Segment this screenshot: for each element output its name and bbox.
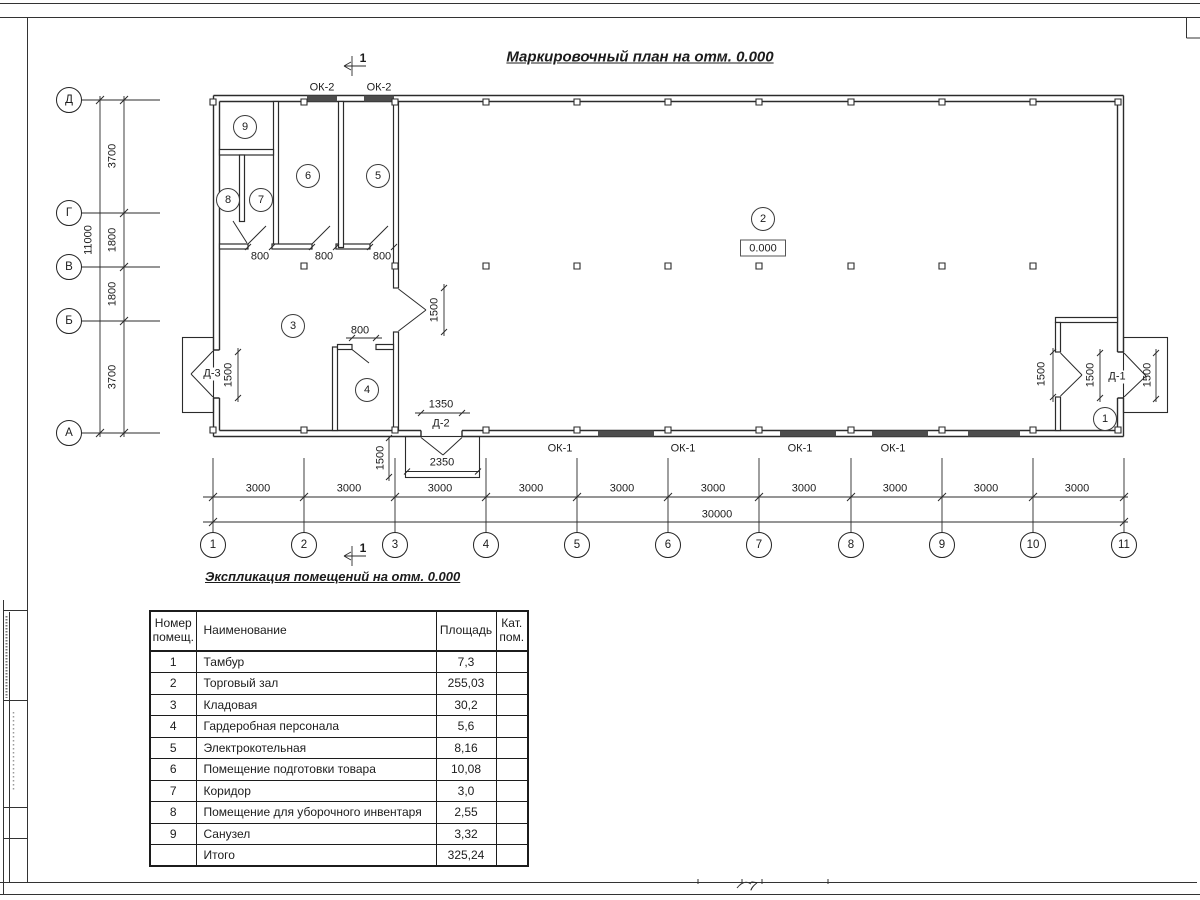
schedule-row: 3Кладовая30,2	[150, 694, 528, 716]
dim-800-room4: 800	[351, 326, 369, 337]
dim-1500-porch: 1500	[376, 446, 387, 470]
dim-v-3700-top: 3700	[108, 144, 119, 168]
dim-h-3000-2: 3000	[337, 484, 361, 495]
drawing-sheet: { "sheet": { "handwritten_mark": "7" }, …	[0, 0, 1200, 900]
axis-bubble-3: 3	[382, 532, 408, 558]
window-label-ok2-2: ОК-2	[367, 83, 392, 94]
axis-bubble-1: 1	[200, 532, 226, 558]
schedule-row-total: Итого325,24	[150, 845, 528, 867]
door-label-d2: Д-2	[432, 419, 449, 430]
dim-1350: 1350	[429, 400, 453, 411]
window-label-ok2-1: ОК-2	[310, 83, 335, 94]
columns	[210, 99, 1121, 433]
dim-800-door6: 800	[315, 252, 333, 263]
axis-bubble-4: 4	[473, 532, 499, 558]
dim-1500-d1: 1500	[1086, 363, 1097, 387]
dim-v-1800-1: 1800	[108, 228, 119, 252]
axis-bubble-6: 6	[655, 532, 681, 558]
window-label-ok1-3: ОК-1	[788, 444, 813, 455]
dim-h-3000-10: 3000	[1065, 484, 1089, 495]
plan-title: Маркировочный план на отм. 0.000	[506, 49, 773, 66]
dim-1500-tambour-door: 1500	[1037, 362, 1048, 386]
dim-2350: 2350	[430, 458, 454, 469]
room-number-3: 3	[281, 314, 305, 338]
axis-bubble-10: 10	[1020, 532, 1046, 558]
schedule-header-num: Номер помещ.	[150, 611, 196, 651]
schedule-row: 8Помещение для уборочного инвентаря2,55	[150, 802, 528, 824]
dim-h-3000-8: 3000	[883, 484, 907, 495]
room-number-8: 8	[216, 188, 240, 212]
window-bands	[307, 96, 1020, 437]
dim-v-total-11000: 11000	[84, 225, 95, 255]
porches	[183, 338, 1168, 478]
room-number-9: 9	[233, 115, 257, 139]
axis-bubble-8: 8	[838, 532, 864, 558]
dim-h-total-30000: 30000	[702, 510, 733, 521]
dim-800-door7: 800	[251, 252, 269, 263]
dim-h-3000-1: 3000	[246, 484, 270, 495]
axis-bubble-d: Д	[56, 87, 82, 113]
dim-h-3000-7: 3000	[792, 484, 816, 495]
axis-bubble-a: А	[56, 420, 82, 446]
schedule-row: 9Санузел3,32	[150, 823, 528, 845]
schedule-title: Экспликация помещений на отм. 0.000	[205, 569, 460, 584]
axis-bubble-11: 11	[1111, 532, 1137, 558]
axis-bubble-g: Г	[56, 200, 82, 226]
section-mark-bottom: 1	[360, 541, 367, 555]
window-label-ok1-1: ОК-1	[548, 444, 573, 455]
schedule-row: 4Гардеробная персонала5,6	[150, 716, 528, 738]
dim-1500-right-porch: 1500	[1143, 363, 1154, 387]
room-number-6: 6	[296, 164, 320, 188]
schedule-row: 7Коридор3,0	[150, 780, 528, 802]
dim-800-door5: 800	[373, 252, 391, 263]
dim-h-3000-9: 3000	[974, 484, 998, 495]
schedule-row: 5Электрокотельная8,16	[150, 737, 528, 759]
room-number-5: 5	[366, 164, 390, 188]
schedule-header-area: Площадь	[436, 611, 496, 651]
door-label-d1: Д-1	[1106, 371, 1127, 384]
schedule-row: 6Помещение подготовки товара10,08	[150, 759, 528, 781]
schedule-header-name: Наименование	[196, 611, 436, 651]
section-mark-top: 1	[360, 51, 367, 65]
window-label-ok1-2: ОК-1	[671, 444, 696, 455]
dim-h-3000-3: 3000	[428, 484, 452, 495]
dim-v-1800-2: 1800	[108, 282, 119, 306]
dim-1500-hall-door: 1500	[430, 298, 441, 322]
room-number-1: 1	[1093, 407, 1117, 431]
window-label-ok1-4: ОК-1	[881, 444, 906, 455]
dim-h-3000-4: 3000	[519, 484, 543, 495]
schedule-row: 2Торговый зал255,03	[150, 673, 528, 695]
axis-bubble-b: Б	[56, 308, 82, 334]
dimension-ticks	[96, 96, 1159, 526]
dim-h-3000-5: 3000	[610, 484, 634, 495]
dim-v-3700-bottom: 3700	[108, 365, 119, 389]
schedule-table: Номер помещ. Наименование Площадь Кат. п…	[149, 610, 529, 867]
axis-bubble-7: 7	[746, 532, 772, 558]
room-number-4: 4	[355, 378, 379, 402]
dim-h-3000-6: 3000	[701, 484, 725, 495]
axis-bubble-5: 5	[564, 532, 590, 558]
dim-1500-d3: 1500	[224, 363, 235, 387]
axis-bubble-v: В	[56, 254, 82, 280]
schedule-header-row: Номер помещ. Наименование Площадь Кат. п…	[150, 611, 528, 651]
schedule-row: 1Тамбур7,3	[150, 651, 528, 673]
axis-bubble-9: 9	[929, 532, 955, 558]
door-label-d3: Д-3	[201, 368, 222, 381]
room-number-2: 2	[751, 207, 775, 231]
axis-bubble-2: 2	[291, 532, 317, 558]
schedule-header-cat: Кат. пом.	[496, 611, 528, 651]
room-number-7: 7	[249, 188, 273, 212]
elevation-mark: 0.000	[740, 240, 786, 257]
